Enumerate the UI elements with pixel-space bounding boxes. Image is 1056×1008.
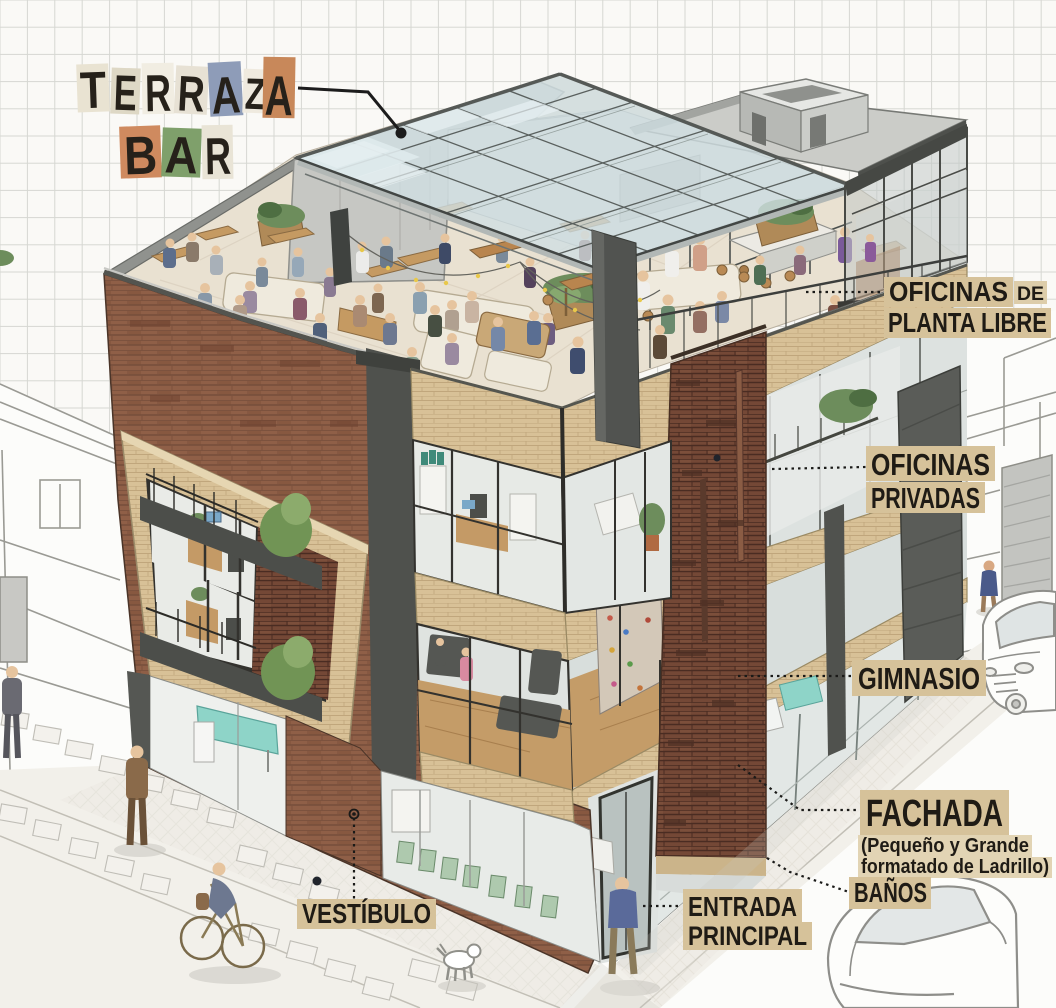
svg-text:R: R	[205, 128, 232, 186]
svg-text:B: B	[123, 125, 158, 186]
svg-text:R: R	[176, 65, 206, 122]
svg-text:OFICINAS: OFICINAS	[871, 447, 990, 482]
svg-text:FACHADA: FACHADA	[866, 793, 1003, 835]
svg-text:R: R	[145, 65, 172, 123]
svg-text:BAÑOS: BAÑOS	[854, 877, 927, 908]
svg-text:OFICINAS: OFICINAS	[889, 276, 1008, 307]
svg-text:GIMNASIO: GIMNASIO	[858, 661, 980, 696]
svg-text:VESTÍBULO: VESTÍBULO	[302, 898, 431, 929]
svg-text:formatado de Ladrillo): formatado de Ladrillo)	[861, 856, 1049, 878]
svg-text:A: A	[164, 126, 199, 185]
svg-text:PLANTA LIBRE: PLANTA LIBRE	[888, 307, 1047, 338]
svg-text:T: T	[79, 62, 107, 121]
svg-text:(Pequeño y Grande: (Pequeño y Grande	[861, 835, 1029, 857]
svg-text:A: A	[264, 64, 293, 127]
svg-text:ENTRADA: ENTRADA	[688, 891, 797, 922]
svg-text:E: E	[113, 65, 138, 122]
svg-text:A: A	[210, 66, 242, 125]
svg-text:DE: DE	[1017, 284, 1044, 305]
svg-text:PRINCIPAL: PRINCIPAL	[688, 921, 807, 951]
svg-text:PRIVADAS: PRIVADAS	[871, 483, 980, 515]
